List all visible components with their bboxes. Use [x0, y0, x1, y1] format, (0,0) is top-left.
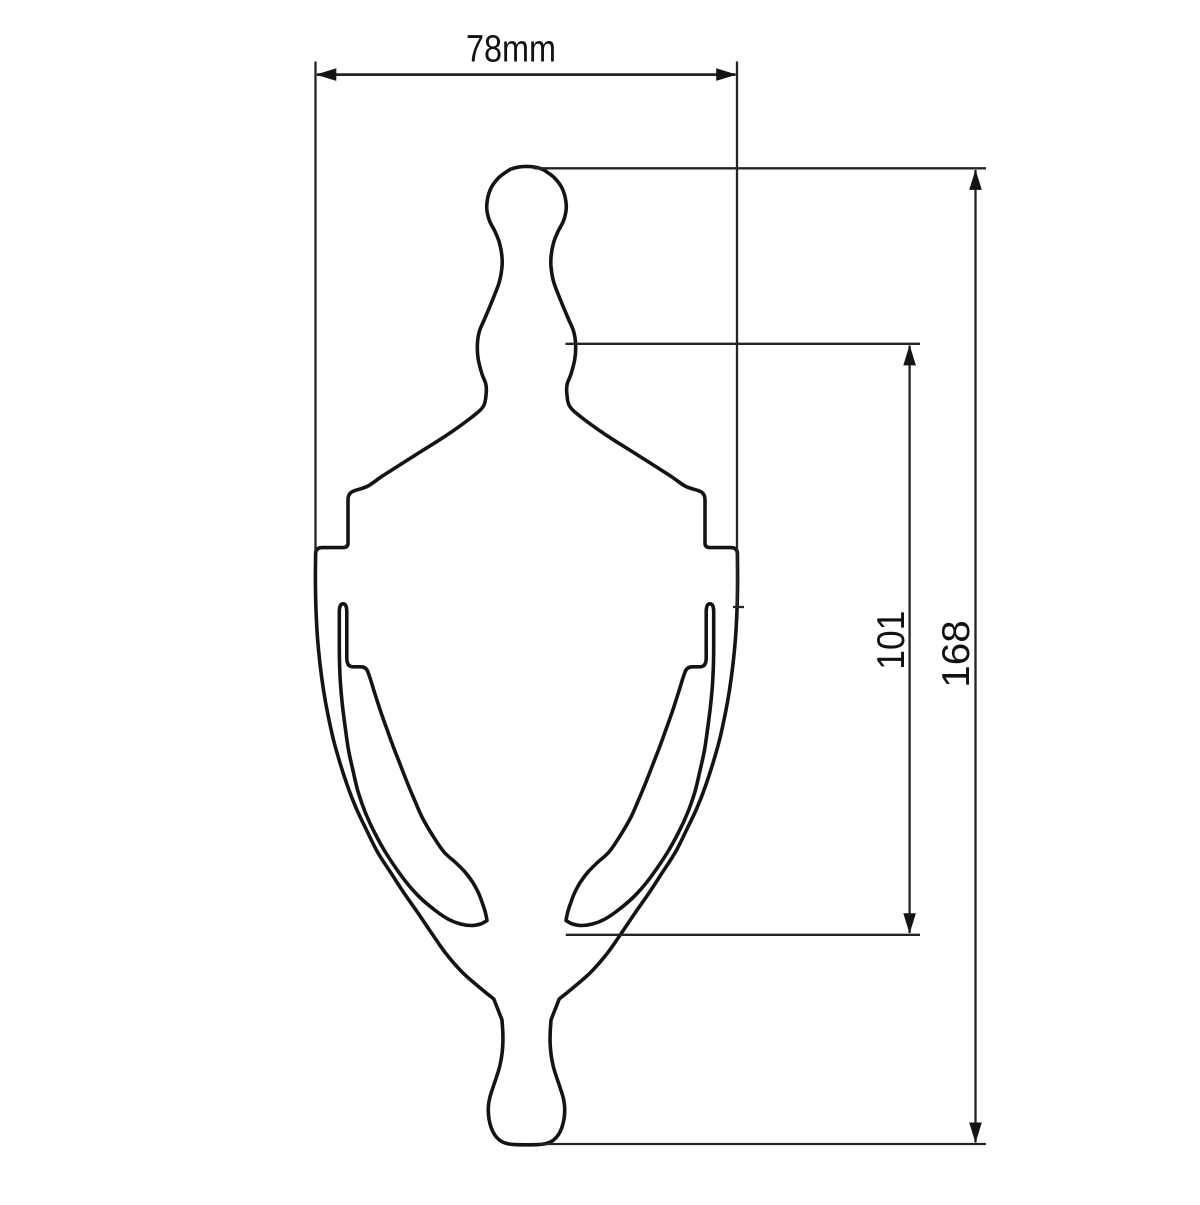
svg-text:168: 168: [935, 620, 978, 688]
svg-text:78mm: 78mm: [466, 29, 556, 71]
svg-text:101: 101: [870, 611, 913, 670]
